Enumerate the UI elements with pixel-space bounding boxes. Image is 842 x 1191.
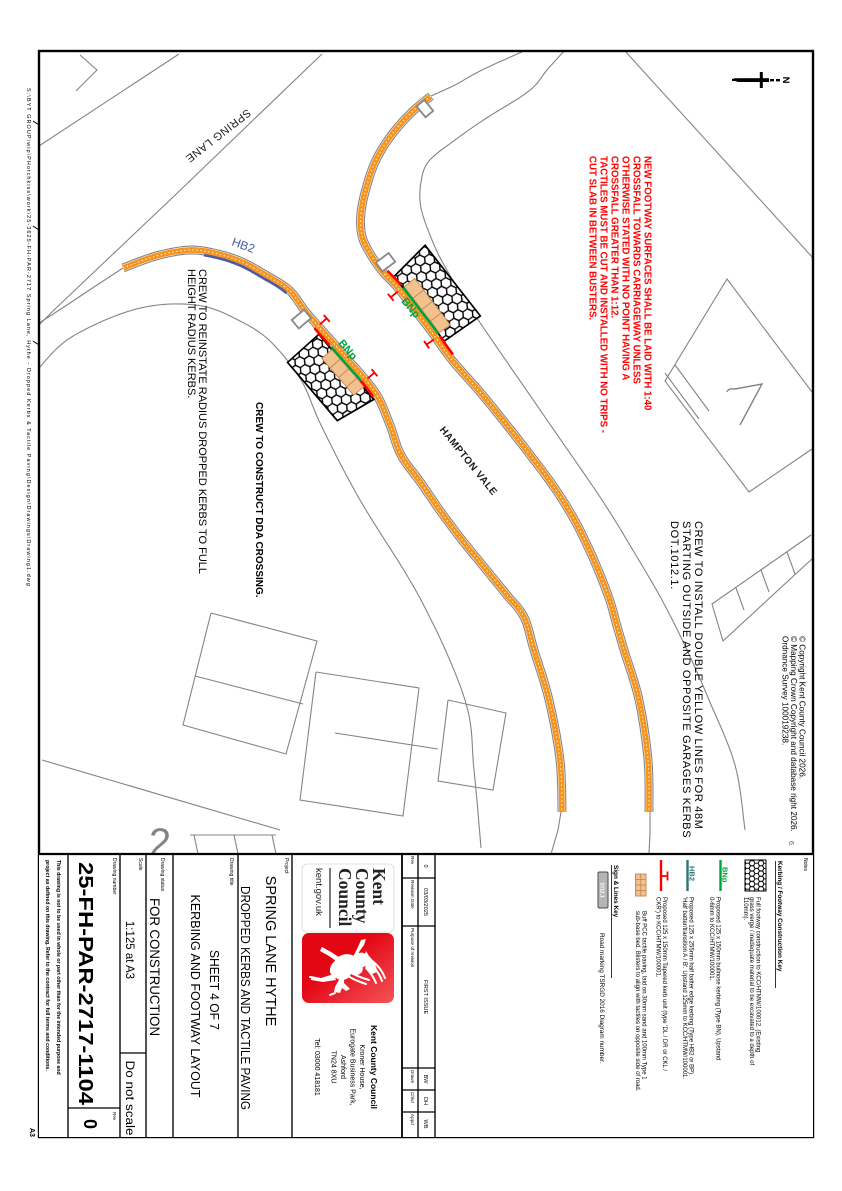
svg-text:1:125 at A3: 1:125 at A3 (123, 921, 135, 979)
svg-text:Project: Project (283, 858, 289, 874)
svg-text:CROSSFALL TOWARDS CARRIAGEWAY: CROSSFALL TOWARDS CARRIAGEWAY UNLESS (631, 156, 642, 384)
svg-text:Full footway construction to K: Full footway construction to KCC/HTMW/10… (755, 897, 761, 1052)
svg-text:6.: 6. (787, 841, 794, 847)
svg-text:Ordnance Survey 100019238.: Ordnance Survey 100019238. (781, 636, 790, 745)
svg-text:Drawing number: Drawing number (111, 858, 117, 895)
svg-text:S:\BYT GROUP\wip\PHotchkiss\wo: S:\BYT GROUP\wip\PHotchkiss\work\25-3625… (25, 88, 31, 587)
svg-text:Sign & Lines Key: Sign & Lines Key (612, 865, 619, 918)
svg-text:'Half batter/transition A / B': 'Half batter/transition A / B'. Upstand … (681, 897, 687, 1079)
svg-text:CUT SLAB IN BETWEEN BUSTERS.: CUT SLAB IN BETWEEN BUSTERS. (587, 156, 598, 320)
svg-text:CREW TO CONSTRUCT DDA CROSSING: CREW TO CONSTRUCT DDA CROSSING. (253, 402, 264, 598)
svg-text:Tel: 03000 418181: Tel: 03000 418181 (313, 1038, 320, 1096)
svg-text:1012.1: 1012.1 (599, 882, 605, 898)
svg-text:SPRING LANE HYTHE: SPRING LANE HYTHE (262, 876, 278, 1027)
svg-text:Ashford: Ashford (339, 1055, 346, 1079)
svg-text:Rev: Rev (112, 1112, 117, 1121)
svg-text:grass verge / inadequate mater: grass verge / inadequate material to be … (748, 897, 754, 1065)
svg-text:Rev: Rev (410, 856, 415, 865)
svg-text:Proposed 125 x 150mm Tapered k: Proposed 125 x 150mm Tapered kerb unit (… (661, 897, 667, 1071)
svg-text:HB2: HB2 (688, 866, 697, 881)
svg-text:KERBING AND FOOTWAY LAYOUT: KERBING AND FOOTWAY LAYOUT (188, 895, 203, 1098)
svg-text:BNp: BNp (721, 867, 730, 883)
svg-text:DOT.1012.1.: DOT.1012.1. (668, 521, 680, 590)
svg-text:HB2: HB2 (230, 235, 257, 256)
svg-text:110mm).: 110mm). (742, 897, 748, 921)
svg-text:Kroner House,: Kroner House, (358, 1044, 365, 1089)
svg-text:kent.gov.uk: kent.gov.uk (313, 868, 324, 916)
svg-text:25-FH-PAR-2717-1104: 25-FH-PAR-2717-1104 (74, 862, 97, 1106)
svg-text:Proposed 125 x 255mm half batt: Proposed 125 x 255mm half batter edge ke… (688, 897, 694, 1076)
svg-text:A3: A3 (28, 1128, 35, 1137)
svg-text:NEW FOOTWAY SURFACES SHALL BE: NEW FOOTWAY SURFACES SHALL BE LAID WITH … (642, 156, 653, 410)
svg-text:Road marking TSRGD 2016 Diagra: Road marking TSRGD 2016 Diagram number. (598, 933, 605, 1064)
svg-text:WB: WB (422, 1119, 428, 1128)
svg-text:OTHERWISE STATED WITH NO POINT: OTHERWISE STATED WITH NO POINT HAVING A (620, 156, 631, 380)
svg-text:CROSSFALL GREATER THAN 1:12.: CROSSFALL GREATER THAN 1:12. (609, 156, 620, 319)
svg-text:03/03/2025: 03/03/2025 (422, 888, 428, 916)
svg-text:SHEET 4 OF 7: SHEET 4 OF 7 (207, 950, 222, 1030)
svg-text:County: County (352, 868, 372, 924)
svg-text:Buff PCC tactile paving, laid: Buff PCC tactile paving, laid on 30mm sa… (641, 911, 647, 1080)
svg-text:Drawing status: Drawing status (159, 858, 165, 892)
svg-text:0: 0 (80, 1119, 100, 1129)
svg-text:BW: BW (422, 1074, 428, 1084)
svg-text:This drawing is not to be used: This drawing is not to be used in whole … (55, 860, 61, 1075)
svg-text:Kerbing / Footway Construction: Kerbing / Footway Construction Key (776, 861, 783, 972)
svg-text:0: 0 (422, 864, 428, 867)
svg-text:Revision Date: Revision Date (410, 880, 415, 909)
svg-text:Chkd: Chkd (410, 1092, 415, 1103)
svg-text:© Copyright Kent County Counci: © Copyright Kent County Council 2026. (798, 636, 807, 779)
svg-text:DH: DH (422, 1097, 428, 1105)
svg-text:CREW TO REINSTATE RADIUS DROPP: CREW TO REINSTATE RADIUS DROPPED KERBS T… (196, 269, 208, 574)
svg-text:STARTING OUTSIDE AND OPPOSITE: STARTING OUTSIDE AND OPPOSITE GARAGES KE… (680, 521, 692, 838)
svg-text:sub-base bed. Blisters to alig: sub-base bed. Blisters to align with tac… (634, 911, 640, 1092)
svg-text:CREW TO INSTALL DOUBLE YELLOW: CREW TO INSTALL DOUBLE YELLOW LINES FOR … (692, 521, 704, 830)
svg-text:Appd: Appd (410, 1114, 415, 1125)
svg-text:HAMPTON VALE: HAMPTON VALE (437, 425, 499, 498)
svg-text:Scale: Scale (137, 858, 143, 871)
svg-text:Council: Council (335, 868, 355, 926)
svg-text:Do not scale: Do not scale (123, 1061, 135, 1136)
svg-text:project as defined on this dra: project as defined on this drawing. Refe… (44, 860, 50, 1071)
svg-text:Purpose of revision: Purpose of revision (410, 928, 415, 968)
svg-text:Proposed 125 x 150mm bullnose: Proposed 125 x 150mm bullnose kerbing (T… (715, 897, 721, 1060)
svg-text:N: N (780, 77, 791, 84)
svg-text:FIRST ISSUE: FIRST ISSUE (422, 980, 428, 1015)
svg-text:Drawn: Drawn (410, 1070, 415, 1084)
svg-text:0-6mm to KCC/HTMW/100001.: 0-6mm to KCC/HTMW/100001. (708, 897, 714, 981)
svg-text:Kent: Kent (369, 868, 389, 905)
svg-text:Drawing title: Drawing title (228, 858, 234, 886)
svg-text:HEIGHT RADIUS KERBS.: HEIGHT RADIUS KERBS. (185, 269, 197, 398)
svg-text:Eurogate Business Park,: Eurogate Business Park, (349, 1028, 356, 1105)
svg-text:TACTILES MUST BE CUT AND INSTA: TACTILES MUST BE CUT AND INSTALLED WITH … (598, 156, 609, 433)
svg-text:DROPPED KERBS AND TACTILE PAVI: DROPPED KERBS AND TACTILE PAVING (238, 886, 253, 1110)
svg-text:TN24 8XU: TN24 8XU (330, 1051, 337, 1084)
svg-text:Notes: Notes (802, 858, 808, 872)
svg-text:© Mapping Crown Copyright and: © Mapping Crown Copyright and database r… (789, 636, 798, 832)
svg-text:CKR') to KCC/HTMW/100001.: CKR') to KCC/HTMW/100001. (655, 897, 661, 978)
svg-text:SPRING LANE: SPRING LANE (183, 106, 253, 164)
svg-text:Kent County Council: Kent County Council (369, 1025, 379, 1109)
svg-text:FOR CONSTRUCTION: FOR CONSTRUCTION (147, 898, 162, 1036)
